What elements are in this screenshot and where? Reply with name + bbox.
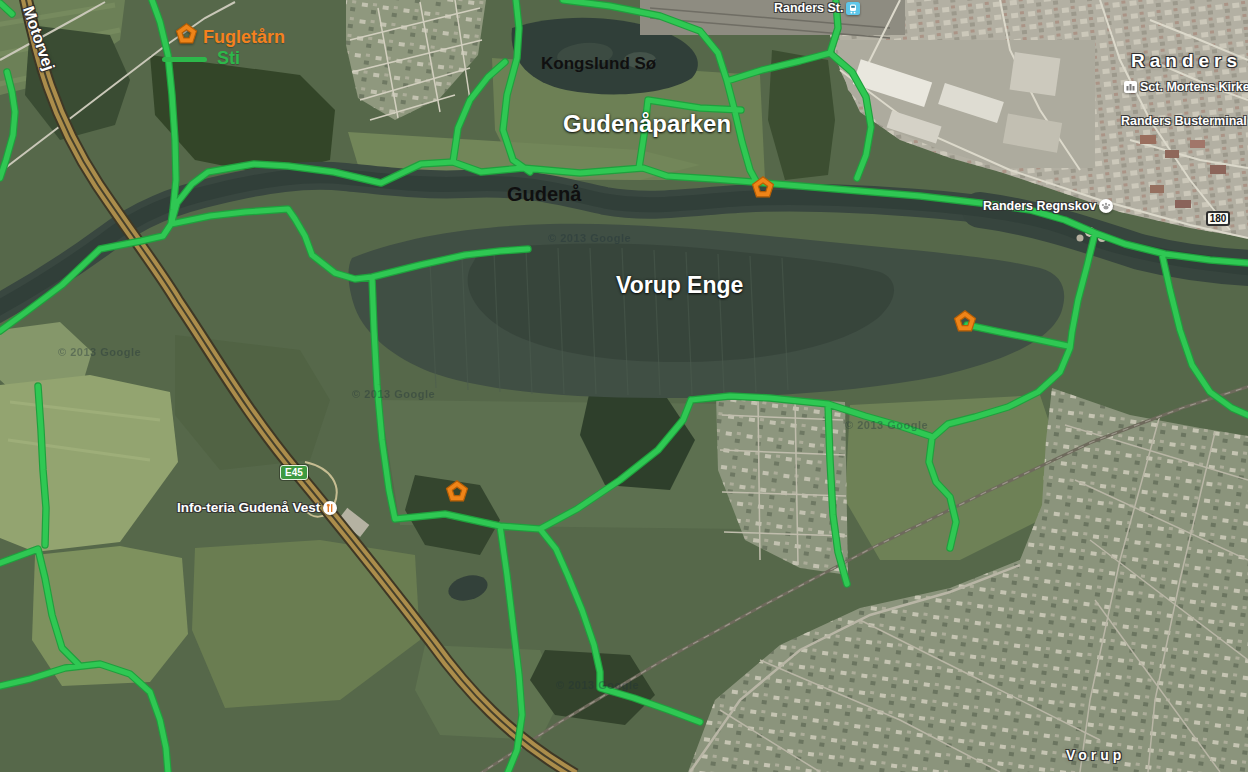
train-station-icon — [846, 2, 860, 15]
restaurant-icon — [323, 501, 337, 515]
legend-sti-label: Sti — [217, 48, 240, 69]
church-icon — [1124, 81, 1137, 93]
e45-road-shield: E45 — [280, 465, 308, 480]
poi-sct-mortens-kirke[interactable]: Sct. Mortens Kirke — [1124, 80, 1248, 94]
route-180-road-shield: 180 — [1206, 211, 1230, 226]
trail-line-sample — [162, 57, 207, 62]
poi-randers-st[interactable]: Randers St. — [774, 1, 860, 15]
poi-randers-regnskov[interactable]: Randers Regnskov — [983, 199, 1113, 213]
poi-randers-busterminal[interactable]: Randers Busterminal — [1121, 114, 1248, 128]
small-pond — [446, 571, 491, 605]
satellite-map[interactable]: Fugletårn Sti Motorvej Kongslund Sø Gude… — [0, 0, 1248, 772]
vorup-enge-wetland — [348, 224, 1064, 398]
suburb-top-center — [346, 0, 486, 120]
poi-info-teria-label: Info-teria Gudenå Vest — [177, 500, 320, 515]
poi-sct-mortens-kirke-label: Sct. Mortens Kirke — [1140, 80, 1248, 94]
poi-info-teria[interactable]: Info-teria Gudenå Vest — [177, 500, 337, 515]
paw-icon — [1099, 199, 1113, 213]
fugletaarn-legend-icon — [175, 23, 198, 46]
poi-randers-regnskov-label: Randers Regnskov — [983, 199, 1096, 213]
poi-randers-st-label: Randers St. — [774, 1, 843, 15]
legend-fugletaarn-label: Fugletårn — [203, 27, 285, 48]
poi-randers-busterminal-label: Randers Busterminal — [1121, 114, 1247, 128]
satellite-imagery — [0, 0, 1248, 772]
